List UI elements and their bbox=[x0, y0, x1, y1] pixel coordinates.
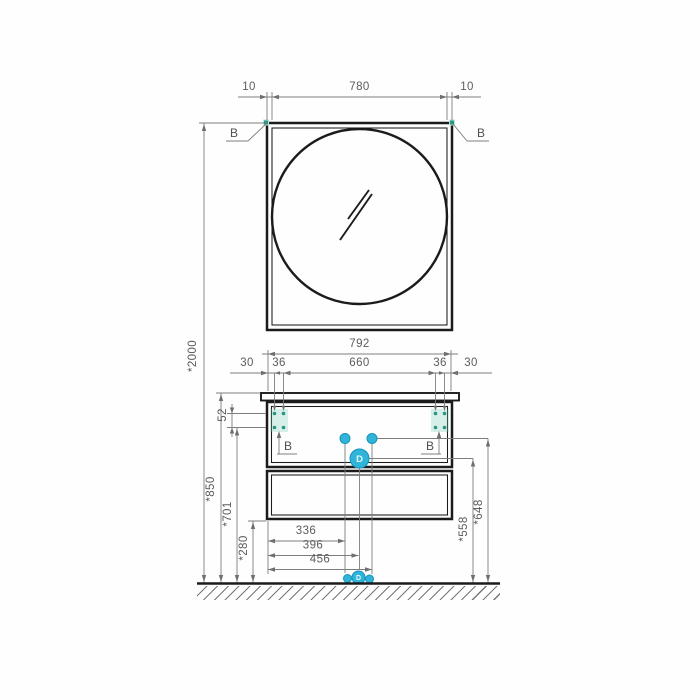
dim-cabinet-width: 792 bbox=[349, 338, 369, 350]
dim-mirror-offset-right: 10 bbox=[460, 81, 474, 93]
vanity-dimension-drawing: 10 780 10 B B bbox=[0, 0, 700, 700]
dim-counter-height: *850 bbox=[205, 476, 217, 501]
mirror-frame-outer bbox=[267, 123, 452, 330]
floor-supply-left bbox=[344, 575, 352, 583]
dim-mount-height: *701 bbox=[222, 501, 234, 526]
mirror-width-dimension: 10 780 10 bbox=[238, 81, 481, 120]
dim-seg-36-left: 36 bbox=[272, 357, 286, 369]
floor-supply-right bbox=[366, 575, 374, 583]
mirror-corner-label-right: B bbox=[477, 126, 485, 140]
mirror-glass-circle bbox=[272, 129, 447, 304]
technical-drawing-canvas: 10 780 10 B B bbox=[0, 0, 700, 700]
mirror-group bbox=[264, 120, 455, 330]
mirror-corner-label-left: B bbox=[230, 126, 238, 140]
dim-bottom-clearance: *280 bbox=[238, 535, 250, 560]
right-dimensions: *558 *648 bbox=[458, 439, 490, 584]
dim-hole-spacing: 52 bbox=[217, 408, 229, 422]
supply-point-right bbox=[367, 434, 377, 444]
dim-offset-336: 336 bbox=[296, 525, 316, 537]
dim-offset-456: 456 bbox=[310, 554, 330, 566]
cabinet-countertop bbox=[261, 393, 459, 401]
hole-group-label-right: B bbox=[426, 439, 434, 453]
hole-callout-right: B bbox=[421, 431, 441, 454]
dim-seg-36-right: 36 bbox=[433, 357, 447, 369]
dim-seg-30-left: 30 bbox=[240, 357, 254, 369]
mounting-holes-right bbox=[431, 409, 449, 432]
bottom-dimensions: 336 396 456 bbox=[268, 521, 372, 574]
hole-callout-left: B bbox=[277, 431, 297, 454]
dim-offset-396: 396 bbox=[303, 540, 323, 552]
hole-group-label-left: B bbox=[284, 439, 292, 453]
mirror-shine-marks bbox=[340, 190, 372, 240]
dim-mirror-width: 780 bbox=[349, 81, 369, 93]
dim-seg-660: 660 bbox=[349, 357, 369, 369]
floor-drain-label: D bbox=[356, 575, 361, 582]
mirror-corner-callout-right: B bbox=[453, 124, 489, 141]
dim-seg-30-right: 30 bbox=[464, 357, 478, 369]
supply-point-left bbox=[340, 434, 350, 444]
dim-supply-height: *648 bbox=[473, 499, 485, 524]
plumbing-markers: D D bbox=[340, 434, 488, 585]
mounting-holes-left bbox=[270, 409, 288, 432]
drain-label: D bbox=[356, 454, 363, 465]
dim-mirror-offset-left: 10 bbox=[242, 81, 256, 93]
mirror-frame-inner bbox=[272, 128, 447, 325]
dim-drain-height: *558 bbox=[458, 516, 470, 541]
left-dimensions: *2000 *850 52 *701 *280 bbox=[187, 123, 266, 583]
dim-total-height: *2000 bbox=[187, 340, 199, 372]
mirror-corner-callout-left: B bbox=[226, 124, 266, 141]
